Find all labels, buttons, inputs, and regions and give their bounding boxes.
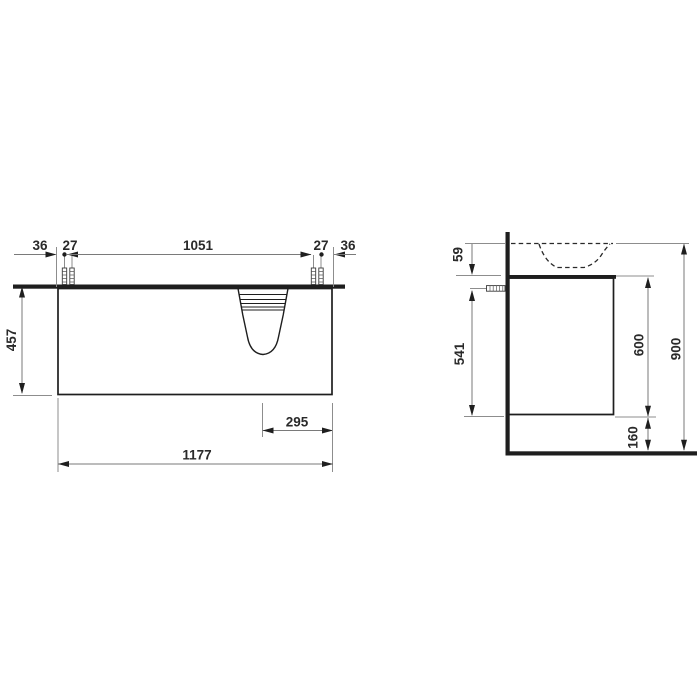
dim-fixing-541: 541	[452, 290, 504, 417]
fixing-screws-left	[62, 255, 74, 285]
dim-clearance-160: 160	[626, 418, 652, 451]
screw-stems	[65, 255, 73, 268]
screw	[487, 286, 506, 292]
dim-36-left-label: 36	[32, 238, 48, 253]
dim-27-right-label: 27	[313, 238, 328, 253]
dim-basin-295: 295	[263, 403, 334, 437]
fixing-screws-right	[311, 255, 323, 285]
arrowhead-down	[681, 440, 687, 451]
dim-27-left-label: 27	[62, 238, 77, 253]
vanity-technical-drawing: 36 27 1051 27 36 457 295 1	[0, 0, 700, 700]
dim-width-1177: 1177	[58, 398, 333, 472]
arrowhead-down	[469, 405, 475, 416]
arrowhead-right	[301, 252, 312, 258]
arrowhead-down	[469, 264, 475, 275]
wall	[506, 232, 510, 456]
cabinet-side-outline	[510, 278, 614, 415]
countertop-front	[13, 285, 345, 289]
dim-rim-59: 59	[451, 244, 506, 276]
dim-900-label: 900	[669, 338, 684, 361]
arrowhead-right	[322, 461, 333, 467]
cabinet-front-outline	[58, 289, 332, 395]
dim-cabinet-600: 600	[615, 276, 656, 417]
arrowhead-up	[681, 244, 687, 255]
cabinet-side	[510, 275, 617, 415]
basin-bowl-curve	[539, 244, 610, 268]
dim-59-label: 59	[451, 247, 466, 262]
arrowhead-down	[645, 440, 651, 451]
dim-1051-label: 1051	[183, 238, 214, 253]
washbasin-dashed	[511, 244, 613, 268]
dim-total-900: 900	[616, 244, 689, 451]
arrowhead-up	[469, 290, 475, 301]
floor	[506, 451, 698, 455]
arrowhead-right	[322, 428, 333, 434]
dim-height-457: 457	[4, 287, 52, 396]
front-view: 36 27 1051 27 36 457 295 1	[4, 238, 356, 472]
extension-lines	[57, 247, 334, 287]
arrowhead-left	[58, 461, 69, 467]
dim-1177-label: 1177	[182, 448, 211, 463]
dim-295-label: 295	[286, 415, 309, 430]
technical-drawing-page: 36 27 1051 27 36 457 295 1	[0, 0, 700, 700]
siphon-outline	[238, 289, 288, 355]
arrowhead-left	[263, 428, 274, 434]
dim-457-label: 457	[4, 329, 19, 352]
screw-stems	[314, 255, 322, 268]
arrowhead-up	[645, 418, 651, 429]
dim-541-label: 541	[452, 342, 467, 365]
fixing-screw-side	[470, 286, 505, 292]
countertop-side	[510, 275, 617, 279]
dim-600-label: 600	[632, 334, 647, 357]
dim-36-right-label: 36	[340, 238, 356, 253]
arrowhead-down	[645, 406, 651, 417]
dim-160-label: 160	[626, 426, 641, 449]
side-view: 59 541 600 160	[451, 232, 698, 456]
arrowhead-down	[19, 383, 25, 394]
siphon-trap	[238, 289, 288, 355]
siphon-rings	[239, 295, 286, 311]
arrowhead-up	[645, 277, 651, 288]
